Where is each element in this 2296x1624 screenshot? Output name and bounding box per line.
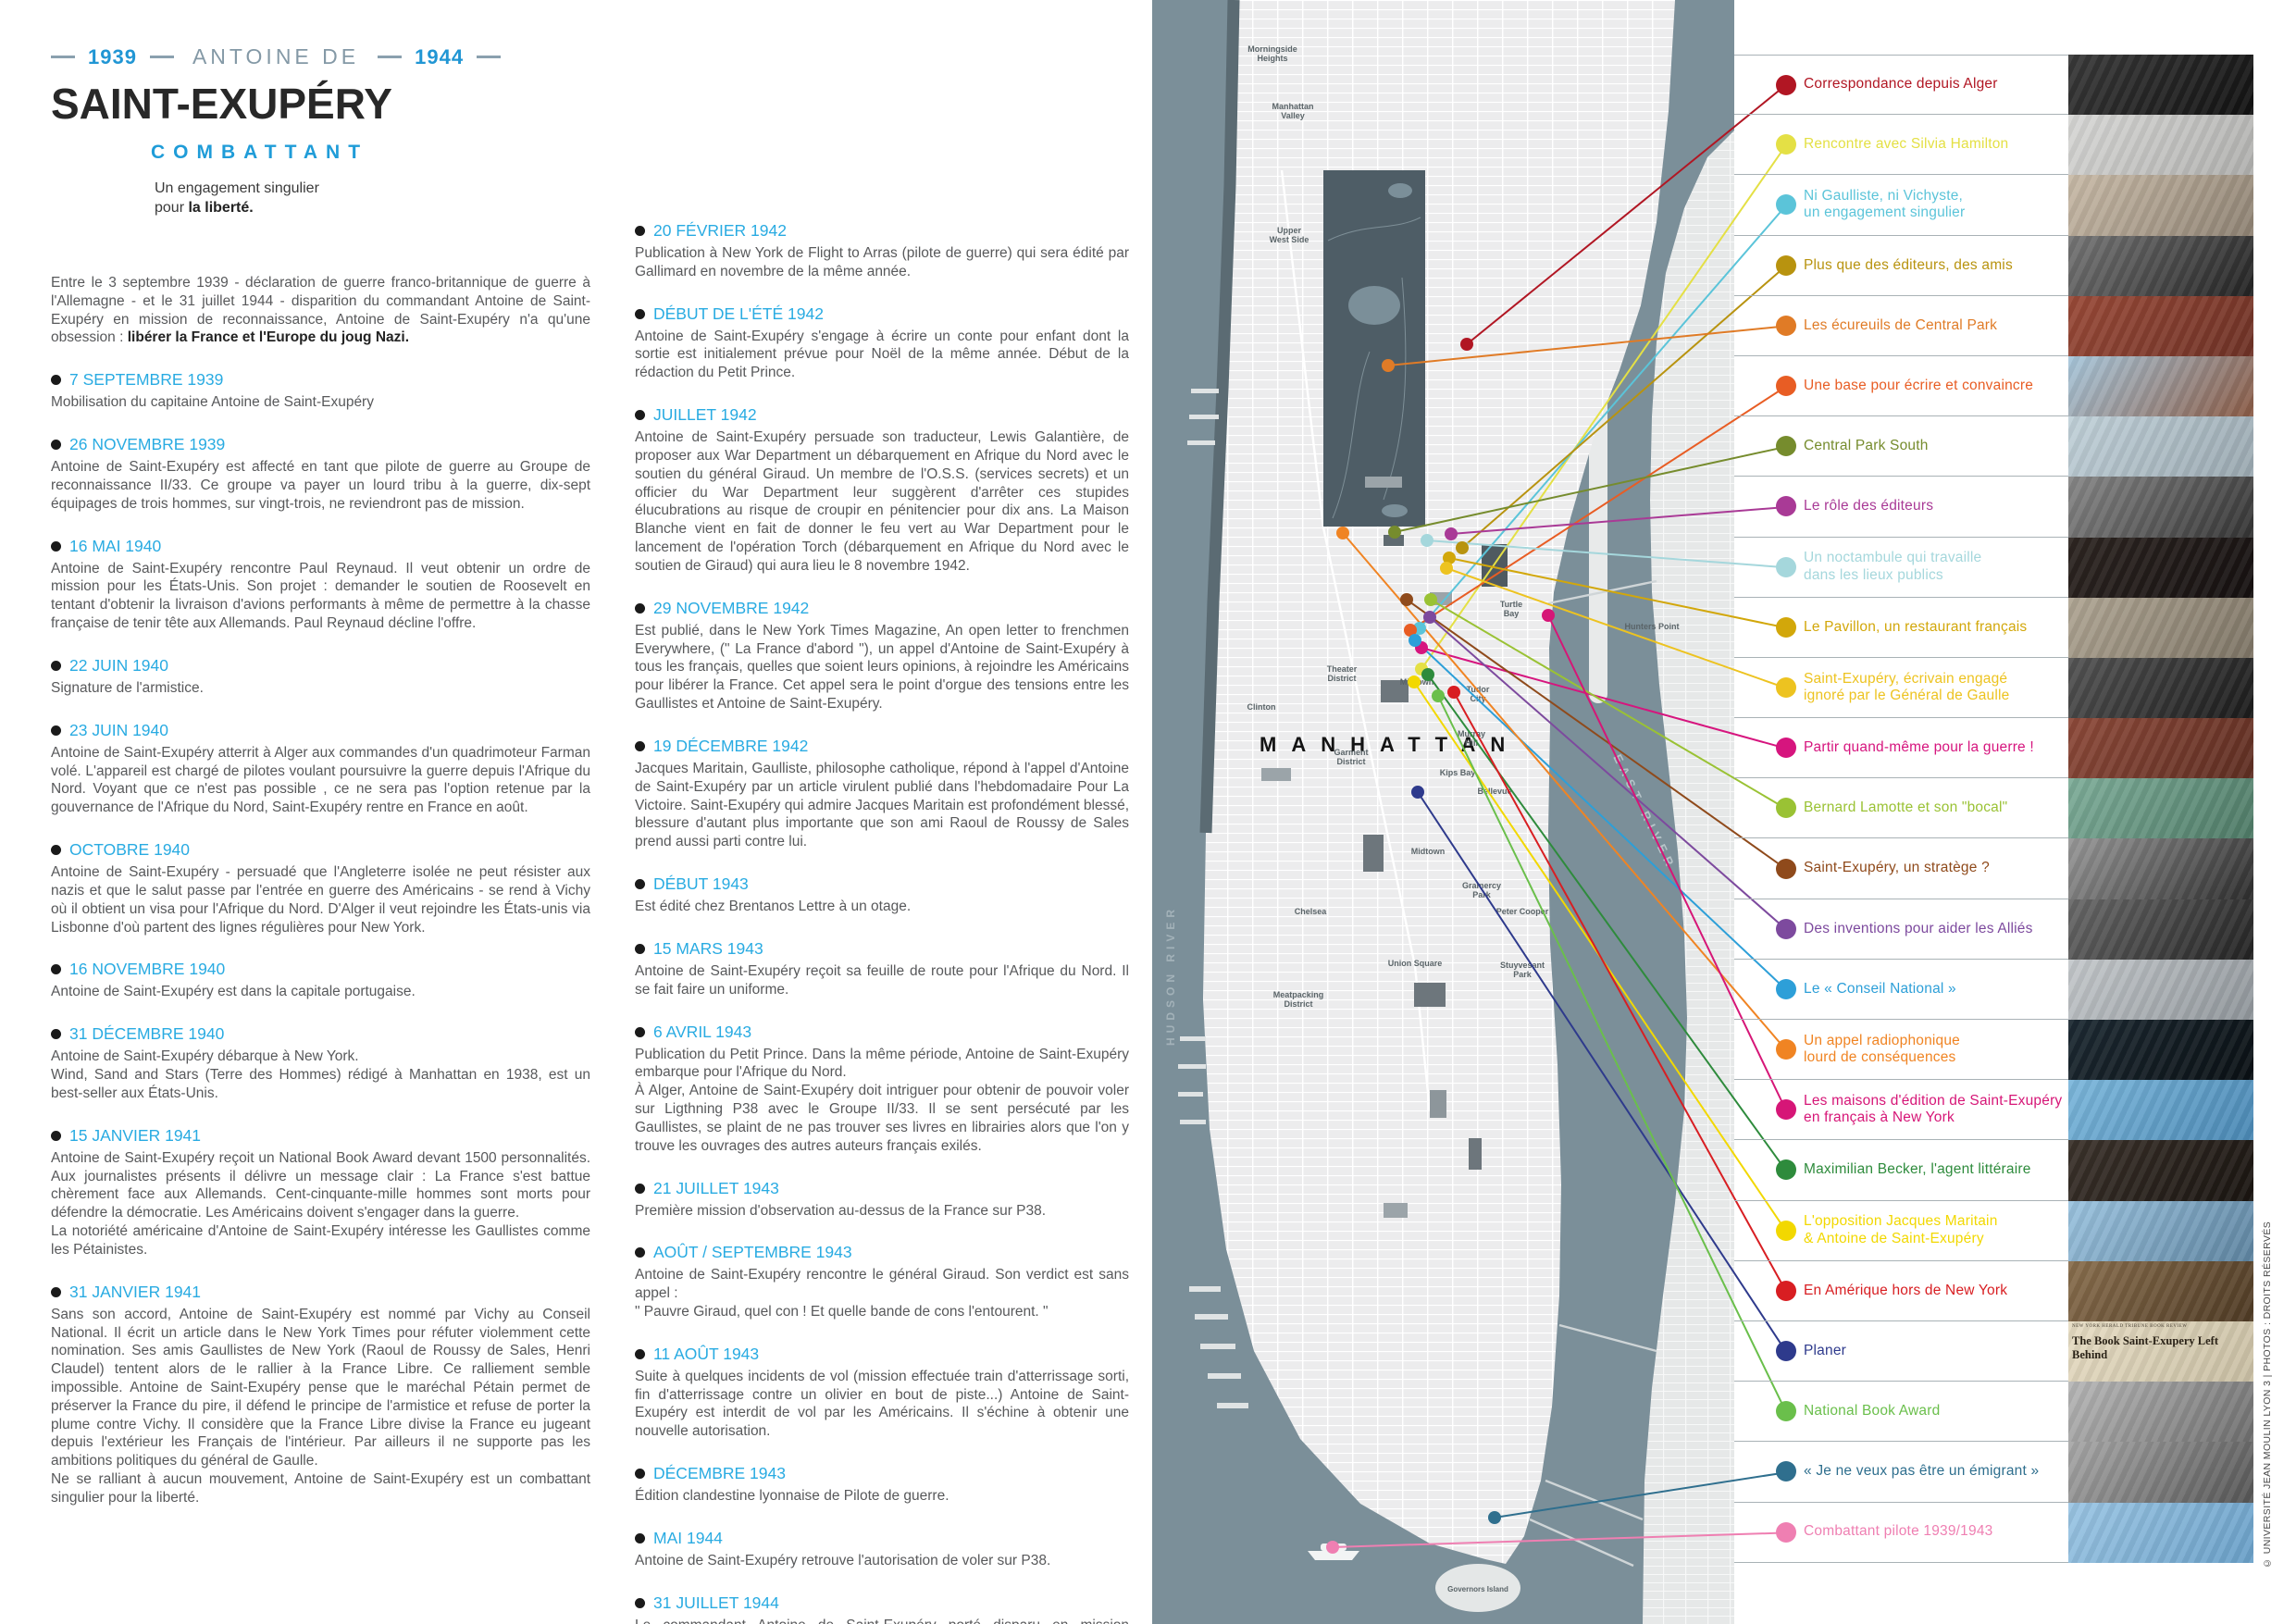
entry-text: Première mission d'observation au-dessus…	[635, 1202, 1129, 1221]
legend-bullet-icon	[1776, 255, 1796, 276]
legend-row: Un appel radiophonique lourd de conséque…	[1734, 1020, 2253, 1080]
legend-bullet-icon	[1776, 859, 1796, 879]
entry-text: Jacques Maritain, Gaulliste, philosophe …	[635, 760, 1129, 851]
legend-bullet-icon	[1776, 1281, 1796, 1301]
year-end: 1944	[415, 45, 464, 69]
legend-bullet-icon	[1776, 798, 1796, 818]
legend-row: Saint-Exupéry, un stratège ?	[1734, 838, 2253, 899]
legend-photo-thumbnail	[2068, 778, 2253, 838]
legend-row: Le rôle des éditeurs	[1734, 477, 2253, 537]
map-event-dot	[1432, 689, 1445, 702]
district-label: TheaterDistrict	[1327, 664, 1358, 683]
entry-date: 6 AVRIL 1943	[635, 1023, 1129, 1042]
entry-date-label: 16 NOVEMBRE 1940	[69, 960, 225, 979]
entry-text: Est publié, dans le New York Times Magaz…	[635, 622, 1129, 713]
legend-photo-thumbnail	[2068, 477, 2253, 537]
poster-canvas: 1939 ANTOINE DE 1944 SAINT-EXUPÉRY COMBA…	[0, 0, 2296, 1624]
entry-text: Antoine de Saint-Exupéry atterrit à Alge…	[51, 744, 590, 817]
legend-label: Les écureuils de Central Park	[1804, 317, 1997, 334]
bullet-icon	[635, 1469, 645, 1479]
legend-row: Saint-Exupéry, écrivain engagé ignoré pa…	[1734, 658, 2253, 718]
legend-row: Bernard Lamotte et son "bocal"	[1734, 778, 2253, 838]
map-event-dot	[1447, 686, 1460, 699]
legend-bullet-icon	[1776, 496, 1796, 516]
district-label: Clinton	[1247, 702, 1276, 712]
entry-date-label: 7 SEPTEMBRE 1939	[69, 370, 223, 390]
entry-date: 15 JANVIER 1941	[51, 1126, 590, 1146]
bullet-icon	[635, 944, 645, 954]
legend-row: Correspondance depuis Alger	[1734, 55, 2253, 115]
legend-label: Rencontre avec Silvia Hamilton	[1804, 136, 2008, 153]
map-event-dot	[1460, 338, 1473, 351]
dash-icon	[150, 56, 174, 58]
bullet-icon	[635, 1184, 645, 1194]
bullet-icon	[635, 741, 645, 751]
bullet-icon	[51, 661, 61, 671]
legend-label: Central Park South	[1804, 438, 1929, 454]
legend-row: Rencontre avec Silvia Hamilton	[1734, 115, 2253, 175]
timeline-entry: AOÛT / SEPTEMBRE 1943Antoine de Saint-Ex…	[635, 1243, 1129, 1320]
legend-bullet-icon	[1776, 1461, 1796, 1481]
legend-entry: Le « Conseil National »	[1734, 960, 2068, 1020]
legend-label: Un noctambule qui travaille dans les lie…	[1804, 550, 1981, 584]
legend-bullet-icon	[1776, 919, 1796, 939]
legend-photo-thumbnail	[2068, 1020, 2253, 1080]
legend-bullet-icon	[1776, 1159, 1796, 1180]
timeline-entry: 21 JUILLET 1943Première mission d'observ…	[635, 1179, 1129, 1221]
credit-line: © UNIVERSITÉ JEAN MOULIN LYON 3 | PHOTOS…	[2262, 1231, 2273, 1568]
entry-date-label: 22 JUIN 1940	[69, 656, 168, 676]
district-label: Hunters Point	[1624, 622, 1679, 631]
entry-text: Antoine de Saint-Exupéry reçoit un Natio…	[51, 1149, 590, 1259]
legend-photo-thumbnail	[2068, 356, 2253, 416]
entry-text: Le commandant Antoine de Saint-Exupéry p…	[635, 1617, 1129, 1624]
header-years-row: 1939 ANTOINE DE 1944	[51, 44, 592, 69]
legend-photo-thumbnail	[2068, 718, 2253, 778]
bullet-icon	[51, 440, 61, 450]
legend-photo-thumbnail	[2068, 1382, 2253, 1442]
legend-label: Maximilian Becker, l'agent littéraire	[1804, 1161, 2031, 1178]
timeline-entry: 15 MARS 1943Antoine de Saint-Exupéry reç…	[635, 939, 1129, 999]
legend-label: Ni Gaulliste, ni Vichyste, un engagement…	[1804, 188, 1965, 222]
entry-date-label: MAI 1944	[653, 1529, 723, 1548]
bullet-icon	[635, 410, 645, 420]
map-event-dot	[1445, 527, 1458, 540]
legend-photo-thumbnail	[2068, 1503, 2253, 1563]
legend-label: Combattant pilote 1939/1943	[1804, 1523, 1992, 1540]
entry-date: 29 NOVEMBRE 1942	[635, 599, 1129, 618]
district-label: Midtown	[1411, 847, 1446, 856]
entry-date: DÉBUT DE L'ÉTÉ 1942	[635, 304, 1129, 324]
map-event-dot	[1488, 1511, 1501, 1524]
legend-row: Le « Conseil National »	[1734, 960, 2253, 1020]
legend-bullet-icon	[1776, 1401, 1796, 1421]
legend-entry: National Book Award	[1734, 1382, 2068, 1442]
timeline-entry: 11 AOÛT 1943Suite à quelques incidents d…	[635, 1345, 1129, 1441]
entry-date: 19 DÉCEMBRE 1942	[635, 737, 1129, 756]
legend-photo-thumbnail	[2068, 1140, 2253, 1200]
intro-bold: libérer la France et l'Europe du joug Na…	[128, 329, 409, 345]
entry-date-label: OCTOBRE 1940	[69, 840, 190, 860]
intro-paragraph: Entre le 3 septembre 1939 - déclaration …	[51, 274, 590, 347]
bullet-icon	[635, 1247, 645, 1258]
entry-date: 20 FÉVRIER 1942	[635, 221, 1129, 241]
entry-text: Publication à New York de Flight to Arra…	[635, 244, 1129, 281]
timeline-entry: DÉBUT 1943Est édité chez Brentanos Lettr…	[635, 874, 1129, 916]
legend-photo-thumbnail	[2068, 416, 2253, 477]
year-start: 1939	[88, 45, 137, 69]
legend-bullet-icon	[1776, 1099, 1796, 1120]
legend-entry: Un noctambule qui travaille dans les lie…	[1734, 538, 2068, 598]
entry-text: Signature de l'armistice.	[51, 679, 590, 698]
entry-date: JUILLET 1942	[635, 405, 1129, 425]
map-event-dot	[1409, 634, 1421, 647]
entry-date: 31 JANVIER 1941	[51, 1283, 590, 1302]
header: 1939 ANTOINE DE 1944 SAINT-EXUPÉRY COMBA…	[51, 44, 592, 217]
entry-date: 31 DÉCEMBRE 1940	[51, 1024, 590, 1044]
legend-label: Une base pour écrire et convaincre	[1804, 378, 2033, 394]
bullet-icon	[51, 845, 61, 855]
map-event-dot	[1423, 611, 1436, 624]
bullet-icon	[51, 1287, 61, 1297]
timeline-column-left: Entre le 3 septembre 1939 - déclaration …	[51, 274, 590, 1507]
legend-entry: Bernard Lamotte et son "bocal"	[1734, 778, 2068, 838]
dash-icon	[378, 56, 402, 58]
map-event-dot	[1542, 609, 1555, 622]
entry-text: Édition clandestine lyonnaise de Pilote …	[635, 1487, 1129, 1506]
entry-date-label: JUILLET 1942	[653, 405, 757, 425]
legend-row: En Amérique hors de New York	[1734, 1261, 2253, 1321]
timeline-entry: 16 NOVEMBRE 1940Antoine de Saint-Exupéry…	[51, 960, 590, 1001]
map-event-dot	[1421, 668, 1434, 681]
legend-label: « Je ne veux pas être un émigrant »	[1804, 1463, 2039, 1480]
map-event-dot	[1336, 527, 1349, 539]
legend-photo-thumbnail	[2068, 1201, 2253, 1261]
timeline-entries-left: 7 SEPTEMBRE 1939Mobilisation du capitain…	[51, 370, 590, 1506]
entry-date: 26 NOVEMBRE 1939	[51, 435, 590, 454]
legend-label: National Book Award	[1804, 1403, 1940, 1419]
map-event-dot	[1400, 593, 1413, 606]
bullet-icon	[635, 1598, 645, 1608]
legend-bullet-icon	[1776, 1039, 1796, 1060]
legend-row: Central Park South	[1734, 416, 2253, 477]
legend-label: L'opposition Jacques Maritain & Antoine …	[1804, 1213, 1998, 1247]
legend-bullet-icon	[1776, 75, 1796, 95]
entry-date-label: 21 JUILLET 1943	[653, 1179, 779, 1198]
legend-bullet-icon	[1776, 617, 1796, 638]
entry-date: 31 JUILLET 1944	[635, 1593, 1129, 1613]
timeline-entries-middle: 20 FÉVRIER 1942Publication à New York de…	[635, 221, 1129, 1624]
entry-date-label: 31 DÉCEMBRE 1940	[69, 1024, 224, 1044]
legend-bullet-icon	[1776, 677, 1796, 698]
map-event-dot	[1382, 359, 1395, 372]
legend-entry: Un appel radiophonique lourd de conséque…	[1734, 1020, 2068, 1080]
legend-bullet-icon	[1776, 436, 1796, 456]
legend-label: Bernard Lamotte et son "bocal"	[1804, 800, 2007, 816]
legend-label: Planer	[1804, 1343, 1846, 1359]
timeline-entry: DÉBUT DE L'ÉTÉ 1942Antoine de Saint-Exup…	[635, 304, 1129, 382]
timeline-entry: 31 JANVIER 1941Sans son accord, Antoine …	[51, 1283, 590, 1507]
legend-row: « Je ne veux pas être un émigrant »	[1734, 1442, 2253, 1502]
legend-row: Maximilian Becker, l'agent littéraire	[1734, 1140, 2253, 1200]
bullet-icon	[51, 964, 61, 974]
district-label: Kips Bay	[1440, 768, 1476, 777]
entry-date: 16 NOVEMBRE 1940	[51, 960, 590, 979]
legend-photo-thumbnail	[2068, 838, 2253, 899]
entry-date: 15 MARS 1943	[635, 939, 1129, 959]
legend-entry: Des inventions pour aider les Alliés	[1734, 899, 2068, 960]
legend-photo-thumbnail	[2068, 538, 2253, 598]
legend-entry: Plus que des éditeurs, des amis	[1734, 236, 2068, 296]
bullet-icon	[635, 603, 645, 614]
legend-label: Correspondance depuis Alger	[1804, 76, 1998, 93]
legend-label: Le Pavillon, un restaurant français	[1804, 619, 2027, 636]
legend-label: Un appel radiophonique lourd de conséque…	[1804, 1033, 1960, 1067]
legend-entry: Central Park South	[1734, 416, 2068, 477]
entry-date-label: 31 JANVIER 1941	[69, 1283, 201, 1302]
entry-date: 21 JUILLET 1943	[635, 1179, 1129, 1198]
timeline-entry: 31 JUILLET 1944Le commandant Antoine de …	[635, 1593, 1129, 1624]
legend-bullet-icon	[1776, 738, 1796, 758]
legend-entry: Rencontre avec Silvia Hamilton	[1734, 115, 2068, 175]
legend-entry: Saint-Exupéry, un stratège ?	[1734, 838, 2068, 899]
bullet-icon	[635, 1349, 645, 1359]
legend-entry: L'opposition Jacques Maritain & Antoine …	[1734, 1201, 2068, 1261]
map-event-dot	[1440, 562, 1453, 575]
entry-date-label: DÉBUT DE L'ÉTÉ 1942	[653, 304, 824, 324]
legend-label: Partir quand-même pour la guerre !	[1804, 739, 2034, 756]
bullet-icon	[51, 375, 61, 385]
entry-date: MAI 1944	[635, 1529, 1129, 1548]
legend-row: Combattant pilote 1939/1943	[1734, 1503, 2253, 1563]
district-label: GarmentDistrict	[1334, 748, 1368, 766]
legend-entry: Les écureuils de Central Park	[1734, 296, 2068, 356]
bullet-icon	[635, 1027, 645, 1037]
entry-date: 11 AOÛT 1943	[635, 1345, 1129, 1364]
entry-text: Antoine de Saint-Exupéry est affecté en …	[51, 458, 590, 513]
central-park	[1323, 170, 1425, 527]
entry-date: DÉBUT 1943	[635, 874, 1129, 894]
entry-date: OCTOBRE 1940	[51, 840, 590, 860]
entry-text: Antoine de Saint-Exupéry rencontre Paul …	[51, 560, 590, 633]
legend-row: Plus que des éditeurs, des amis	[1734, 236, 2253, 296]
hudson-river-label: HUDSON RIVER	[1164, 905, 1177, 1046]
entry-date: 22 JUIN 1940	[51, 656, 590, 676]
map-event-dot	[1326, 1541, 1339, 1554]
entry-text: Publication du Petit Prince. Dans la mêm…	[635, 1046, 1129, 1156]
entry-date-label: 20 FÉVRIER 1942	[653, 221, 787, 241]
timeline-entry: 23 JUIN 1940Antoine de Saint-Exupéry att…	[51, 721, 590, 817]
entry-date-label: AOÛT / SEPTEMBRE 1943	[653, 1243, 852, 1262]
page-subtitle: COMBATTANT	[151, 142, 592, 164]
entry-date-label: 29 NOVEMBRE 1942	[653, 599, 809, 618]
legend-row: National Book Award	[1734, 1382, 2253, 1442]
entry-date-label: 16 MAI 1940	[69, 537, 161, 556]
legend-bullet-icon	[1776, 979, 1796, 999]
entry-text: Antoine de Saint-Exupéry est dans la cap…	[51, 983, 590, 1001]
bullet-icon	[51, 1131, 61, 1141]
legend-photo-thumbnail	[2068, 960, 2253, 1020]
entry-text: Antoine de Saint-Exupéry persuade son tr…	[635, 428, 1129, 576]
legend-label: Saint-Exupéry, un stratège ?	[1804, 860, 1990, 876]
entry-date-label: 19 DÉCEMBRE 1942	[653, 737, 808, 756]
map-event-dot	[1411, 786, 1424, 799]
timeline-entry: 22 JUIN 1940Signature de l'armistice.	[51, 656, 590, 698]
timeline-entry: 7 SEPTEMBRE 1939Mobilisation du capitain…	[51, 370, 590, 412]
entry-date-label: 26 NOVEMBRE 1939	[69, 435, 225, 454]
entry-text: Antoine de Saint-Exupéry débarque à New …	[51, 1048, 590, 1102]
entry-text: Antoine de Saint-Exupéry s'engage à écri…	[635, 328, 1129, 382]
photo-caption: The Book Saint-Exupery Left Behind	[2072, 1334, 2250, 1362]
legend-entry: Correspondance depuis Alger	[1734, 55, 2068, 115]
legend-entry: Le rôle des éditeurs	[1734, 477, 2068, 537]
page-title: SAINT-EXUPÉRY	[51, 79, 592, 129]
legend-label: Plus que des éditeurs, des amis	[1804, 257, 2013, 274]
legend-row: Des inventions pour aider les Alliés	[1734, 899, 2253, 960]
legend-entry: Planer	[1734, 1321, 2068, 1382]
photo-subcaption: NEW YORK HERALD TRIBUNE BOOK REVIEW	[2072, 1324, 2250, 1329]
bullet-icon	[51, 1029, 61, 1039]
entry-text: Suite à quelques incidents de vol (missi…	[635, 1368, 1129, 1441]
timeline-entry: 19 DÉCEMBRE 1942Jacques Maritain, Gaulli…	[635, 737, 1129, 851]
dash-icon	[51, 56, 75, 58]
legend-photo-thumbnail	[2068, 658, 2253, 718]
legend-label: Des inventions pour aider les Alliés	[1804, 921, 2033, 937]
legend-entry: « Je ne veux pas être un émigrant »	[1734, 1442, 2068, 1502]
legend-entry: En Amérique hors de New York	[1734, 1261, 2068, 1321]
legend-label: Saint-Exupéry, écrivain engagé ignoré pa…	[1804, 671, 2009, 705]
bullet-icon	[635, 1533, 645, 1543]
legend-label: En Amérique hors de New York	[1804, 1283, 2007, 1299]
legend-row: Une base pour écrire et convaincre	[1734, 356, 2253, 416]
legend-entry: Saint-Exupéry, écrivain engagé ignoré pa…	[1734, 658, 2068, 718]
legend-label: Le « Conseil National »	[1804, 981, 1956, 998]
legend-bullet-icon	[1776, 376, 1796, 396]
bullet-icon	[635, 226, 645, 236]
legend-photo-thumbnail	[2068, 55, 2253, 115]
entry-date: AOÛT / SEPTEMBRE 1943	[635, 1243, 1129, 1262]
timeline-entry: JUILLET 1942Antoine de Saint-Exupéry per…	[635, 405, 1129, 576]
district-label: Chelsea	[1295, 907, 1328, 916]
timeline-entry: 31 DÉCEMBRE 1940Antoine de Saint-Exupéry…	[51, 1024, 590, 1102]
legend-photo-thumbnail	[2068, 236, 2253, 296]
legend-label: Les maisons d'édition de Saint-Exupéry e…	[1804, 1093, 2062, 1127]
timeline-entry: DÉCEMBRE 1943Édition clandestine lyonnai…	[635, 1464, 1129, 1506]
legend-entry: Partir quand-même pour la guerre !	[1734, 718, 2068, 778]
entry-text: Antoine de Saint-Exupéry rencontre le gé…	[635, 1266, 1129, 1320]
entry-text: Antoine de Saint-Exupéry - persuadé que …	[51, 863, 590, 936]
legend-row: PlanerNEW YORK HERALD TRIBUNE BOOK REVIE…	[1734, 1321, 2253, 1382]
map-event-dot	[1456, 541, 1469, 554]
entry-date: 23 JUIN 1940	[51, 721, 590, 740]
timeline-entry: 15 JANVIER 1941Antoine de Saint-Exupéry …	[51, 1126, 590, 1259]
timeline-entry: 16 MAI 1940Antoine de Saint-Exupéry renc…	[51, 537, 590, 633]
timeline-entry: 20 FÉVRIER 1942Publication à New York de…	[635, 221, 1129, 281]
tagline-line1: Un engagement singulier	[155, 180, 319, 196]
timeline-entry: MAI 1944Antoine de Saint-Exupéry retrouv…	[635, 1529, 1129, 1570]
legend-entry: Une base pour écrire et convaincre	[1734, 356, 2068, 416]
bullet-icon	[635, 309, 645, 319]
legend-entry: Maximilian Becker, l'agent littéraire	[1734, 1140, 2068, 1200]
legend-photo-thumbnail: NEW YORK HERALD TRIBUNE BOOK REVIEWThe B…	[2068, 1321, 2253, 1382]
map-event-dot	[1421, 534, 1433, 547]
entry-text: Mobilisation du capitaine Antoine de Sai…	[51, 393, 590, 412]
legend-entry: Combattant pilote 1939/1943	[1734, 1503, 2068, 1563]
timeline-entry: 6 AVRIL 1943Publication du Petit Prince.…	[635, 1023, 1129, 1156]
legend-bullet-icon	[1776, 1221, 1796, 1241]
legend-bullet-icon	[1776, 1522, 1796, 1543]
legend-entry: Les maisons d'édition de Saint-Exupéry e…	[1734, 1080, 2068, 1140]
legend-photo-thumbnail	[2068, 1261, 2253, 1321]
entry-date-label: 23 JUIN 1940	[69, 721, 168, 740]
legend-bullet-icon	[1776, 194, 1796, 215]
legend-row: Le Pavillon, un restaurant français	[1734, 598, 2253, 658]
legend-entry: Le Pavillon, un restaurant français	[1734, 598, 2068, 658]
governors-island-label: Governors Island	[1447, 1585, 1508, 1593]
map-event-dot	[1408, 676, 1421, 688]
timeline-column-middle: 20 FÉVRIER 1942Publication à New York de…	[635, 198, 1129, 1624]
entry-date-label: DÉBUT 1943	[653, 874, 749, 894]
dash-icon	[477, 56, 501, 58]
entry-date: 7 SEPTEMBRE 1939	[51, 370, 590, 390]
legend-row: L'opposition Jacques Maritain & Antoine …	[1734, 1201, 2253, 1261]
legend-row: Partir quand-même pour la guerre !	[1734, 718, 2253, 778]
tagline-line2: pour	[155, 200, 188, 216]
bullet-icon	[51, 725, 61, 736]
entry-date-label: 31 JUILLET 1944	[653, 1593, 779, 1613]
entry-date-label: 15 JANVIER 1941	[69, 1126, 201, 1146]
entry-text: Antoine de Saint-Exupéry retrouve l'auto…	[635, 1552, 1129, 1570]
entry-date-label: 15 MARS 1943	[653, 939, 763, 959]
entry-text: Est édité chez Brentanos Lettre à un ota…	[635, 898, 1129, 916]
legend-photo-thumbnail	[2068, 598, 2253, 658]
name-top: ANTOINE DE	[192, 44, 359, 69]
map-event-dot	[1388, 526, 1401, 539]
entry-date: 16 MAI 1940	[51, 537, 590, 556]
legend-bullet-icon	[1776, 557, 1796, 577]
entry-text: Sans son accord, Antoine de Saint-Exupér…	[51, 1306, 590, 1507]
bullet-icon	[635, 879, 645, 889]
legend-label: Le rôle des éditeurs	[1804, 498, 1933, 514]
legend-photo-thumbnail	[2068, 296, 2253, 356]
tagline: Un engagement singulier pour la liberté.	[155, 179, 592, 217]
legend-photo-thumbnail	[2068, 1442, 2253, 1502]
entry-date-label: 6 AVRIL 1943	[653, 1023, 751, 1042]
entry-date-label: DÉCEMBRE 1943	[653, 1464, 786, 1483]
entry-date-label: 11 AOÛT 1943	[653, 1345, 759, 1364]
legend-photo-thumbnail	[2068, 899, 2253, 960]
legend-bullet-icon	[1776, 316, 1796, 336]
map-event-dot	[1424, 593, 1437, 606]
bullet-icon	[51, 541, 61, 552]
legend-row: Ni Gaulliste, ni Vichyste, un engagement…	[1734, 175, 2253, 235]
timeline-entry: 29 NOVEMBRE 1942Est publié, dans le New …	[635, 599, 1129, 713]
timeline-entry: OCTOBRE 1940Antoine de Saint-Exupéry - p…	[51, 840, 590, 936]
entry-date: DÉCEMBRE 1943	[635, 1464, 1129, 1483]
legend-bullet-icon	[1776, 1341, 1796, 1361]
legend-photo-thumbnail	[2068, 1080, 2253, 1140]
legend-photo-thumbnail	[2068, 115, 2253, 175]
entry-text: Antoine de Saint-Exupéry reçoit sa feuil…	[635, 962, 1129, 999]
legend-photo-thumbnail	[2068, 175, 2253, 235]
district-label: Union Square	[1388, 959, 1443, 968]
legend-bullet-icon	[1776, 134, 1796, 155]
legend-row: Un noctambule qui travaille dans les lie…	[1734, 538, 2253, 598]
legend-row: Les écureuils de Central Park	[1734, 296, 2253, 356]
legend-entry: Ni Gaulliste, ni Vichyste, un engagement…	[1734, 175, 2068, 235]
timeline-entry: 26 NOVEMBRE 1939Antoine de Saint-Exupéry…	[51, 435, 590, 513]
legend-row: Les maisons d'édition de Saint-Exupéry e…	[1734, 1080, 2253, 1140]
